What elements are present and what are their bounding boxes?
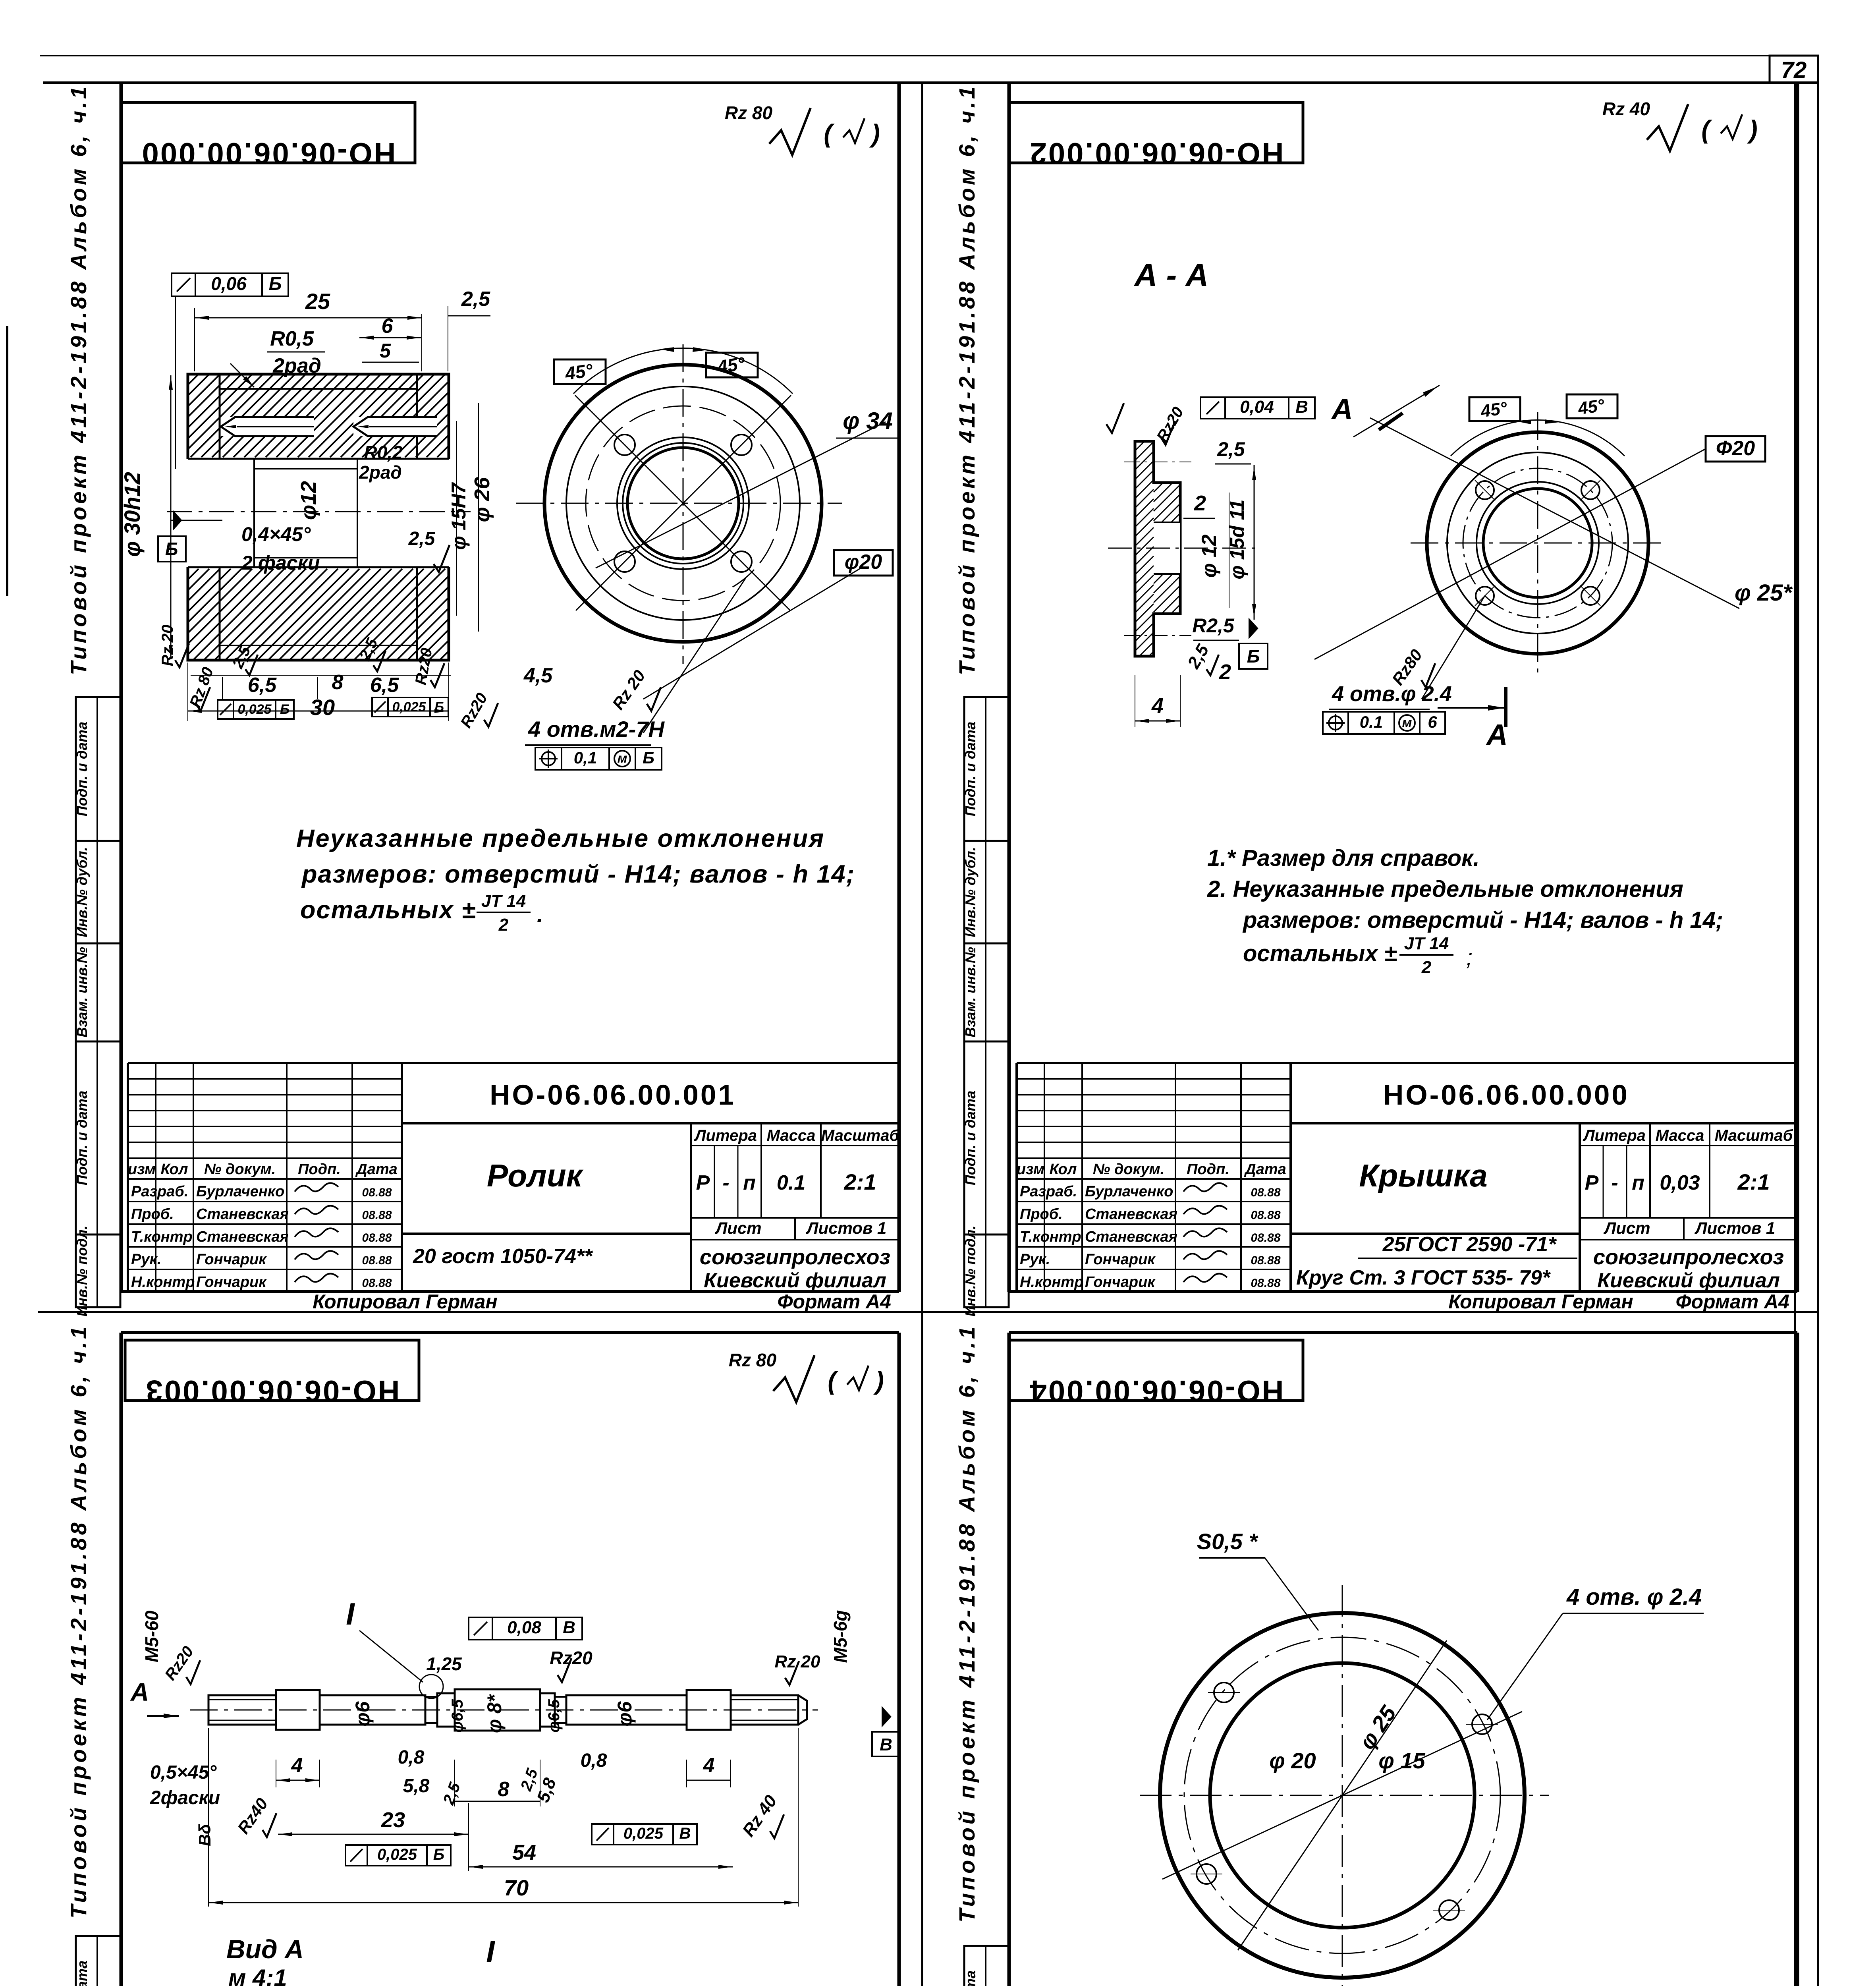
svg-text:Rz 80: Rz 80 xyxy=(725,102,773,123)
svg-text:φ 25*: φ 25* xyxy=(1735,580,1793,606)
svg-text:08.88: 08.88 xyxy=(362,1277,392,1290)
svg-text:Н.контр: Н.контр xyxy=(131,1274,195,1291)
svg-text:0,4×45°: 0,4×45° xyxy=(241,523,311,545)
svg-text:Гончарик: Гончарик xyxy=(1085,1274,1156,1291)
svg-text:Rz 20: Rz 20 xyxy=(159,625,176,667)
svg-text:Б: Б xyxy=(280,702,290,717)
svg-text:45°: 45° xyxy=(564,359,594,384)
svg-text:08.88: 08.88 xyxy=(1251,1231,1280,1244)
svg-text:2. Неуказанные предельные отк: 2. Неуказанные предельные отклонения xyxy=(1207,876,1683,902)
svg-text:08.88: 08.88 xyxy=(362,1254,392,1267)
svg-text:НО-06.06.00.000: НО-06.06.00.000 xyxy=(1383,1080,1629,1111)
svg-text:Проб.: Проб. xyxy=(1020,1206,1063,1223)
svg-text:JT 14: JT 14 xyxy=(1404,934,1449,953)
svg-text:Б: Б xyxy=(1247,646,1260,667)
svg-text:08.88: 08.88 xyxy=(362,1209,392,1222)
svg-text:Кол: Кол xyxy=(1050,1161,1077,1178)
svg-text:45°: 45° xyxy=(1577,396,1606,419)
svg-text:Литера: Литера xyxy=(1583,1127,1646,1144)
svg-text:Подп. и дата: Подп. и дата xyxy=(962,722,979,816)
svg-text:S0,5 *: S0,5 * xyxy=(1197,1529,1258,1554)
svg-text:остальных ±: остальных ± xyxy=(1243,941,1397,966)
svg-text:2фаски: 2фаски xyxy=(150,1787,220,1808)
svg-text:0,1: 0,1 xyxy=(574,748,597,767)
svg-text:Р: Р xyxy=(1585,1171,1599,1194)
svg-text:8: 8 xyxy=(498,1778,510,1801)
svg-text:Формат А4: Формат А4 xyxy=(777,1291,891,1313)
svg-text:0,03: 0,03 xyxy=(1660,1171,1700,1194)
svg-text:Разраб.: Разраб. xyxy=(1020,1183,1077,1200)
svg-text:Б: Б xyxy=(643,748,654,767)
svg-text:2: 2 xyxy=(1219,660,1231,684)
svg-text:Неуказанные предельные откло: Неуказанные предельные отклонения xyxy=(296,825,825,852)
svg-text:6: 6 xyxy=(1428,713,1437,731)
svg-text:А: А xyxy=(130,1678,149,1706)
svg-text:25ГОСТ 2590 -71*: 25ГОСТ 2590 -71* xyxy=(1382,1233,1558,1256)
svg-text:2 фаски: 2 фаски xyxy=(241,552,320,574)
svg-text:п: п xyxy=(1632,1171,1644,1194)
svg-text:08.88: 08.88 xyxy=(1251,1277,1280,1290)
svg-text:Б: Б xyxy=(433,1846,444,1863)
svg-text:Разраб.: Разраб. xyxy=(131,1183,188,1200)
svg-text:Подп. и дата: Подп. и дата xyxy=(962,1971,979,1986)
svg-text:Киевский филиал: Киевский филиал xyxy=(704,1269,886,1292)
svg-text:М5-6g: М5-6g xyxy=(830,1610,851,1663)
svg-text:Листов 1: Листов 1 xyxy=(1695,1219,1776,1237)
svg-text:70: 70 xyxy=(504,1875,529,1900)
svg-text:0,025: 0,025 xyxy=(623,1825,664,1842)
svg-text:Rz 80: Rz 80 xyxy=(729,1350,777,1370)
svg-text:Подп.: Подп. xyxy=(1187,1161,1229,1178)
svg-text:I: I xyxy=(346,1596,355,1631)
svg-text:4: 4 xyxy=(291,1754,303,1777)
svg-text:Формат А4: Формат А4 xyxy=(1675,1291,1789,1313)
svg-text:А: А xyxy=(1486,718,1507,751)
svg-text:Лист: Лист xyxy=(1603,1219,1650,1237)
svg-text:φ6,5: φ6,5 xyxy=(545,1699,563,1733)
svg-text:Вδ: Вδ xyxy=(195,1824,214,1846)
svg-text:Типовой проект 411-2-191.88: Типовой проект 411-2-191.88 Альбом 6, ч.… xyxy=(66,87,91,675)
svg-text:В: В xyxy=(679,1825,691,1842)
svg-text:45°: 45° xyxy=(1479,398,1509,421)
svg-text:НО-06.06.00.001: НО-06.06.00.001 xyxy=(490,1080,736,1111)
svg-text:20 гост 1050-74**: 20 гост 1050-74** xyxy=(413,1245,593,1268)
svg-text:НО-06.06.00.003: НО-06.06.00.003 xyxy=(144,1374,400,1408)
svg-text:Станевская: Станевская xyxy=(196,1206,289,1223)
svg-text:Инв.№ подл.: Инв.№ подл. xyxy=(962,1225,979,1316)
svg-text:R0,2: R0,2 xyxy=(364,442,403,463)
svg-text:Инв.№ дубл.: Инв.№ дубл. xyxy=(74,847,90,937)
svg-text:2,5: 2,5 xyxy=(1217,438,1245,460)
svg-text:Инв.№ дубл.: Инв.№ дубл. xyxy=(962,847,979,937)
svg-text:08.88: 08.88 xyxy=(1251,1209,1280,1222)
svg-text:Масштаб: Масштаб xyxy=(821,1127,900,1144)
svg-text:72: 72 xyxy=(1781,57,1807,83)
svg-text:φ6: φ6 xyxy=(614,1701,636,1726)
svg-text:φ 8*: φ 8* xyxy=(483,1694,506,1733)
svg-text:Масса: Масса xyxy=(1656,1127,1704,1144)
svg-text:Круг Ст. 3 ГОСТ 535- 79*: Круг Ст. 3 ГОСТ 535- 79* xyxy=(1296,1266,1551,1289)
svg-text:НО-06.06.00.002: НО-06.06.00.002 xyxy=(1028,136,1283,170)
svg-text:Подп. и дата: Подп. и дата xyxy=(74,722,90,816)
svg-text:Подп. и дата: Подп. и дата xyxy=(962,1091,979,1185)
svg-text:2:1: 2:1 xyxy=(844,1169,876,1194)
svg-text:-: - xyxy=(1611,1171,1618,1194)
svg-text:2,5: 2,5 xyxy=(461,288,490,311)
svg-text:23: 23 xyxy=(381,1808,405,1832)
svg-text:φ 26: φ 26 xyxy=(470,477,494,522)
svg-text:φ 30h12: φ 30h12 xyxy=(120,472,145,557)
svg-text:Станевская: Станевская xyxy=(196,1229,289,1245)
svg-text:Гончарик: Гончарик xyxy=(1085,1251,1156,1268)
svg-text:-: - xyxy=(722,1171,729,1194)
svg-text:0,08: 0,08 xyxy=(507,1618,541,1637)
svg-text:Типовой проект 411-2-191.88: Типовой проект 411-2-191.88 Альбом 6, ч.… xyxy=(954,87,979,675)
svg-text:Гончарик: Гончарик xyxy=(196,1251,267,1268)
svg-text:08.88: 08.88 xyxy=(362,1231,392,1244)
svg-text:Ф20: Ф20 xyxy=(1716,437,1755,460)
svg-text:Бурлаченко: Бурлаченко xyxy=(196,1183,284,1200)
svg-text:φ 20: φ 20 xyxy=(1269,1748,1316,1773)
svg-text:R2,5: R2,5 xyxy=(1192,614,1235,637)
svg-text:Вид А: Вид А xyxy=(226,1934,304,1964)
svg-text:союзгипролесхоз: союзгипролесхоз xyxy=(1593,1245,1784,1269)
svg-text:Рук.: Рук. xyxy=(131,1251,161,1268)
svg-text:А - А: А - А xyxy=(1134,257,1209,293)
svg-text:Инв.№ подл.: Инв.№ подл. xyxy=(74,1225,90,1316)
svg-text:Рук.: Рук. xyxy=(1020,1251,1050,1268)
svg-text:0,8: 0,8 xyxy=(581,1750,607,1771)
svg-text:п: п xyxy=(743,1171,756,1194)
svg-text:2рад: 2рад xyxy=(272,354,321,377)
svg-text:Rz 20: Rz 20 xyxy=(775,1652,820,1671)
svg-text:0.1: 0.1 xyxy=(1360,713,1383,731)
svg-text:Копировал Герман: Копировал Герман xyxy=(313,1291,497,1313)
svg-text:Rz 40: Rz 40 xyxy=(1602,99,1650,119)
svg-text:2,5: 2,5 xyxy=(408,528,436,549)
svg-text:Копировал Герман: Копировал Герман xyxy=(1448,1291,1633,1313)
svg-text:0,8: 0,8 xyxy=(398,1747,425,1768)
svg-text:Литера: Литера xyxy=(694,1127,757,1144)
svg-text:м 4:1: м 4:1 xyxy=(228,1965,287,1986)
svg-text:Станевская: Станевская xyxy=(1085,1229,1177,1245)
svg-text:4 отв.м2-7Н: 4 отв.м2-7Н xyxy=(528,717,665,742)
svg-text:R0,5: R0,5 xyxy=(270,327,314,350)
svg-text:Станевская: Станевская xyxy=(1085,1206,1177,1223)
svg-text:Крышка: Крышка xyxy=(1359,1158,1488,1193)
svg-text:НО-06.06.00.004: НО-06.06.00.004 xyxy=(1028,1374,1283,1408)
svg-text:4 отв. φ 2.4: 4 отв. φ 2.4 xyxy=(1566,1584,1702,1610)
svg-text:2:1: 2:1 xyxy=(1737,1169,1770,1194)
svg-text:φ20: φ20 xyxy=(845,551,882,574)
svg-text:Т.контр: Т.контр xyxy=(131,1229,193,1245)
svg-text:φ 12: φ 12 xyxy=(1198,534,1221,578)
svg-text:Взам. инв.№: Взам. инв.№ xyxy=(74,947,90,1037)
svg-text:6,5: 6,5 xyxy=(370,674,399,697)
svg-text:0,06: 0,06 xyxy=(211,273,247,294)
svg-text:4: 4 xyxy=(1151,694,1164,718)
svg-text:2рад: 2рад xyxy=(359,462,402,483)
svg-text:08.88: 08.88 xyxy=(1251,1254,1280,1267)
svg-text:Подп. и дата: Подп. и дата xyxy=(74,1091,90,1185)
svg-text:Масса: Масса xyxy=(767,1127,816,1144)
svg-text:№ докум.: № докум. xyxy=(204,1161,276,1178)
svg-text:Б: Б xyxy=(165,539,178,559)
svg-text:φ6: φ6 xyxy=(351,1701,374,1726)
svg-text:25: 25 xyxy=(305,289,330,314)
svg-text:φ6,5: φ6,5 xyxy=(449,1699,466,1733)
svg-text:Подп. и дата: Подп. и дата xyxy=(74,1961,90,1986)
svg-text:Проб.: Проб. xyxy=(131,1206,174,1223)
svg-text:размеров: отверстий - Н14; в: размеров: отверстий - Н14; валов - h 14; xyxy=(1242,907,1723,933)
svg-text:2: 2 xyxy=(1421,958,1432,977)
svg-text:30: 30 xyxy=(310,695,335,720)
svg-text:остальных ±: остальных ± xyxy=(300,896,476,924)
svg-text:6: 6 xyxy=(382,315,394,338)
svg-text:;: ; xyxy=(1466,945,1473,970)
svg-text:Б: Б xyxy=(269,273,282,294)
svg-text:Типовой проект 411-2-191.88: Типовой проект 411-2-191.88 Альбом 6, ч.… xyxy=(954,1327,979,1922)
svg-text:В: В xyxy=(880,1735,892,1754)
svg-text:φ 34: φ 34 xyxy=(843,408,893,434)
svg-text:1.* Размер для справок.: 1.* Размер для справок. xyxy=(1207,845,1480,871)
svg-text:54: 54 xyxy=(512,1841,536,1864)
svg-text:А: А xyxy=(1331,392,1353,425)
svg-text:5: 5 xyxy=(380,340,391,362)
svg-text:В: В xyxy=(1295,397,1308,417)
svg-text:Rz20: Rz20 xyxy=(550,1648,593,1668)
svg-text:4,5: 4,5 xyxy=(523,664,553,687)
svg-text:2: 2 xyxy=(1194,491,1206,515)
svg-text:м: м xyxy=(1402,715,1412,730)
svg-text:0,5×45°: 0,5×45° xyxy=(150,1762,217,1783)
svg-text:Подп.: Подп. xyxy=(298,1161,341,1178)
svg-text:.: . xyxy=(537,901,544,927)
svg-text:08.88: 08.88 xyxy=(1251,1186,1280,1199)
svg-text:Р: Р xyxy=(696,1171,710,1194)
svg-text:8: 8 xyxy=(332,671,344,694)
svg-text:0,025: 0,025 xyxy=(377,1846,417,1863)
svg-text:Взам. инв.№: Взам. инв.№ xyxy=(962,947,979,1037)
svg-text:I: I xyxy=(486,1934,495,1969)
svg-text:Дата: Дата xyxy=(1244,1161,1286,1178)
svg-text:Масштаб: Масштаб xyxy=(1715,1127,1793,1144)
svg-text:0,025: 0,025 xyxy=(237,702,272,717)
svg-text:размеров: отверстий - Н14;: размеров: отверстий - Н14; валов - h 14; xyxy=(301,860,855,888)
svg-text:45°: 45° xyxy=(716,353,747,377)
svg-text:Н.контр: Н.контр xyxy=(1020,1274,1083,1291)
svg-text:Лист: Лист xyxy=(714,1219,761,1237)
svg-text:φ 15: φ 15 xyxy=(1378,1748,1425,1773)
svg-text:0.1: 0.1 xyxy=(777,1171,805,1194)
svg-text:4 отв.φ 2.4: 4 отв.φ 2.4 xyxy=(1332,682,1452,706)
svg-text:Бурлаченко: Бурлаченко xyxy=(1085,1183,1173,1200)
svg-text:М5-60: М5-60 xyxy=(141,1610,162,1662)
svg-text:Кол: Кол xyxy=(161,1161,188,1178)
svg-text:В: В xyxy=(563,1618,575,1637)
svg-text:2: 2 xyxy=(498,915,509,935)
svg-text:Дата: Дата xyxy=(355,1161,398,1178)
svg-text:изм: изм xyxy=(128,1161,156,1178)
svg-text:φ12: φ12 xyxy=(297,481,320,520)
svg-text:Листов 1: Листов 1 xyxy=(806,1219,887,1237)
svg-text:Т.контр: Т.контр xyxy=(1020,1229,1081,1245)
svg-text:м: м xyxy=(618,751,627,766)
svg-text:союзгипролесхоз: союзгипролесхоз xyxy=(700,1245,890,1269)
svg-text:Ролик: Ролик xyxy=(487,1158,584,1193)
svg-text:08.88: 08.88 xyxy=(362,1186,392,1199)
svg-text:φ 15Н7: φ 15Н7 xyxy=(448,482,470,550)
svg-text:6,5: 6,5 xyxy=(248,674,277,697)
svg-text:0,025: 0,025 xyxy=(392,699,426,715)
svg-text:Типовой проект 411-2-191.88: Типовой проект 411-2-191.88 Альбом 6, ч.… xyxy=(66,1327,91,1918)
svg-text:1,25: 1,25 xyxy=(426,1654,462,1674)
svg-text:НО-06.06.00.000: НО-06.06.00.000 xyxy=(140,136,396,170)
svg-text:5,8: 5,8 xyxy=(403,1775,430,1797)
svg-text:Киевский филиал: Киевский филиал xyxy=(1597,1269,1780,1292)
svg-text:4: 4 xyxy=(703,1754,715,1777)
svg-text:№ докум.: № докум. xyxy=(1093,1161,1164,1178)
svg-text:изм: изм xyxy=(1017,1161,1044,1178)
svg-text:0,04: 0,04 xyxy=(1240,397,1274,417)
svg-text:JT 14: JT 14 xyxy=(481,891,526,911)
svg-text:Гончарик: Гончарик xyxy=(196,1274,267,1291)
